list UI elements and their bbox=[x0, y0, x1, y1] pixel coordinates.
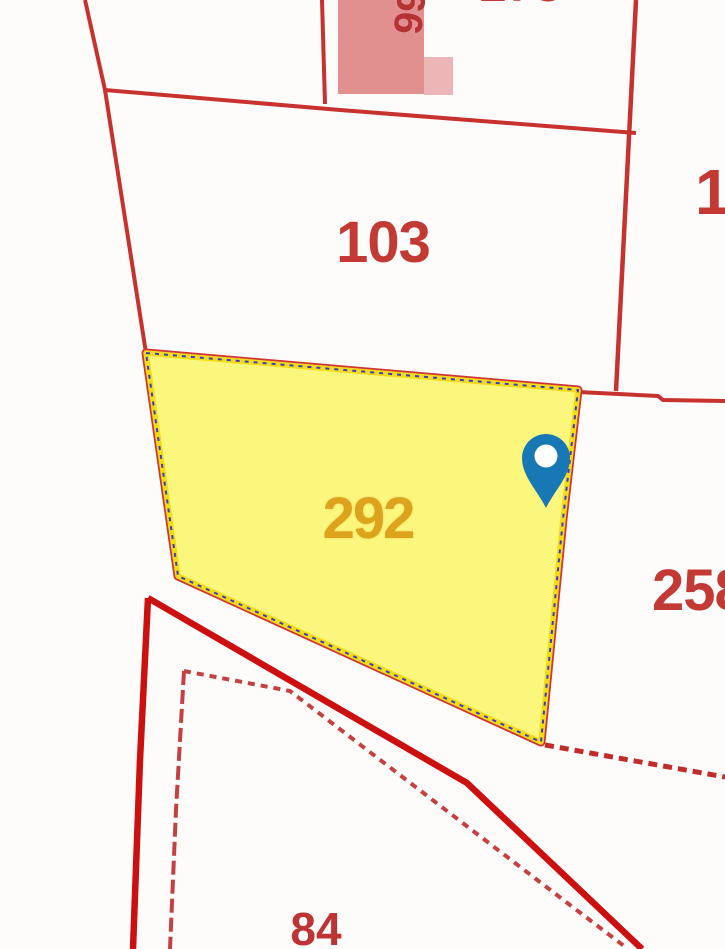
parcel-label-top-partial: 173 bbox=[478, 0, 561, 9]
building-footprint-annex bbox=[424, 57, 453, 95]
parcel-label-right-partial: 1 bbox=[695, 160, 725, 224]
boundary-right-lower-dashed bbox=[545, 745, 725, 777]
boundary-84-left-thick bbox=[133, 598, 148, 949]
map-canvas[interactable]: 103 292 258 84 1 66 173 bbox=[0, 0, 725, 949]
boundary-right-upper bbox=[578, 392, 725, 401]
parcel-label-84: 84 bbox=[290, 906, 341, 949]
boundary-building-left bbox=[322, 0, 325, 104]
pin-hole bbox=[535, 445, 558, 468]
boundary-inner-vertical-dashed bbox=[170, 671, 184, 949]
parcel-label-292-selected: 292 bbox=[323, 490, 414, 548]
boundary-inner-diagonal-dashed bbox=[184, 671, 628, 949]
parcel-label-258: 258 bbox=[652, 562, 725, 620]
boundary-left-slant bbox=[85, 0, 146, 353]
boundary-parcel-103-top bbox=[105, 90, 636, 133]
building-label-rotated: 66 bbox=[386, 0, 431, 37]
parcel-label-103: 103 bbox=[336, 214, 430, 272]
boundary-parcel-103-right bbox=[616, 0, 636, 391]
map-layers bbox=[0, 0, 725, 949]
